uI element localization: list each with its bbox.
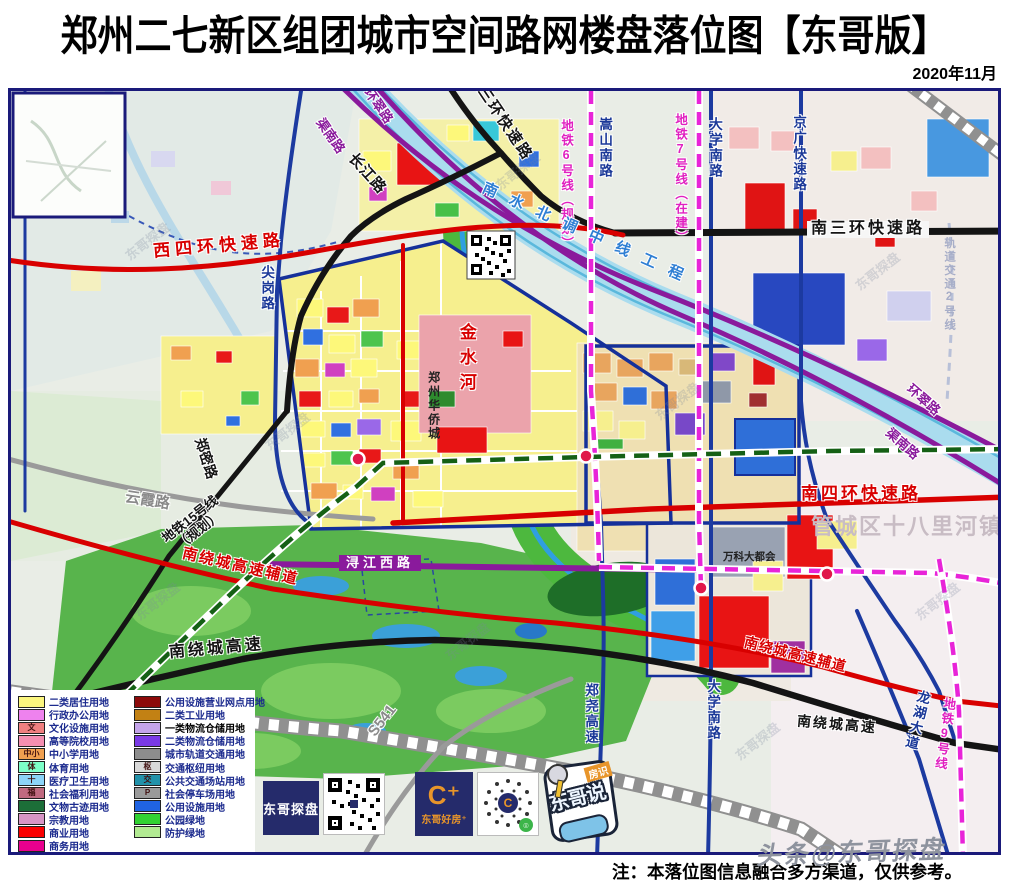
- legend-item: 二类工业用地: [134, 708, 254, 721]
- legend-swatch: 交: [134, 774, 161, 786]
- legend-swatch: [134, 735, 161, 747]
- legend-swatch: [134, 696, 161, 708]
- legend-item: 一类物流仓储用地: [134, 721, 254, 734]
- legend-item: 行政办公用地: [18, 708, 134, 721]
- legend-item: 二类居住用地: [18, 695, 134, 708]
- legend-swatch: [134, 826, 161, 838]
- legend-item: 中小中小学用地: [18, 747, 134, 760]
- legend-item: 枢交通枢纽用地: [134, 760, 254, 773]
- legend: 二类居住用地 行政办公用地 文文化设施用地 高等院校用地 中小中小学用地 体体育…: [11, 690, 255, 852]
- svg-text:⌾: ⌾: [523, 821, 529, 831]
- haofang-logo: C⁺ 东哥好房⁺: [415, 772, 473, 836]
- legend-swatch: 十: [18, 774, 45, 786]
- legend-swatch: [134, 748, 161, 760]
- legend-swatch: 福: [18, 787, 45, 799]
- legend-item: 商务用地: [18, 839, 134, 852]
- legend-item: 文物古迹用地: [18, 800, 134, 813]
- svg-text:C: C: [504, 796, 513, 810]
- legend-item: 高等院校用地: [18, 734, 134, 747]
- legend-swatch: [134, 709, 161, 721]
- legend-item: 城市轨道交通用地: [134, 747, 254, 760]
- legend-column-right: 公用设施营业网点用地 二类工业用地 一类物流仓储用地 二类物流仓储用地 城市轨道…: [134, 695, 254, 852]
- planning-map: 西四环快速路 南三环快速路 西三环快速路 长江路 环翠路 渠南路 地铁6号线（规…: [8, 88, 1001, 855]
- page: 郑州二七新区组团城市空间路网楼盘落位图【东哥版】 2020年11月: [0, 0, 1009, 893]
- legend-item: 防护绿地: [134, 826, 254, 839]
- legend-swatch: [18, 826, 45, 838]
- page-title: 郑州二七新区组团城市空间路网楼盘落位图【东哥版】: [0, 2, 1009, 62]
- legend-swatch: [18, 800, 45, 812]
- legend-swatch: [134, 813, 161, 825]
- legend-swatch: 文: [18, 722, 45, 734]
- legend-item: 交公共交通场站用地: [134, 774, 254, 787]
- tanpan-qr-code: [323, 773, 385, 835]
- legend-swatch: [18, 696, 45, 708]
- legend-column-left: 二类居住用地 行政办公用地 文文化设施用地 高等院校用地 中小中小学用地 体体育…: [18, 695, 134, 852]
- inset-map: [13, 93, 125, 217]
- legend-item: 福社会福利用地: [18, 787, 134, 800]
- legend-item: 商业用地: [18, 826, 134, 839]
- legend-swatch: [18, 813, 45, 825]
- legend-item: 宗教用地: [18, 813, 134, 826]
- legend-item: 公园绿地: [134, 813, 254, 826]
- map-qr-code: [467, 231, 515, 279]
- legend-swatch: [134, 800, 161, 812]
- legend-item: 公用设施营业网点用地: [134, 695, 254, 708]
- legend-swatch: 中小: [18, 748, 45, 760]
- legend-item: 二类物流仓储用地: [134, 734, 254, 747]
- legend-swatch: [18, 840, 45, 852]
- legend-swatch: 枢: [134, 761, 161, 773]
- legend-swatch: 体: [18, 761, 45, 773]
- dongge-shuo-badge: 房识 东哥说: [538, 754, 625, 848]
- haofang-qr-code: C ⌾: [477, 772, 539, 836]
- haofang-c-icon: C⁺: [428, 782, 461, 808]
- legend-item: 文文化设施用地: [18, 721, 134, 734]
- legend-item: P社会停车场用地: [134, 787, 254, 800]
- legend-swatch: [134, 722, 161, 734]
- toutiao-watermark: 头条@东哥探盘: [755, 830, 950, 873]
- tanpan-logo: 东哥探盘: [263, 781, 319, 835]
- legend-item: 体体育用地: [18, 760, 134, 773]
- legend-item: 公用设施用地: [134, 800, 254, 813]
- legend-swatch: P: [134, 787, 161, 799]
- legend-swatch: [18, 735, 45, 747]
- map-date: 2020年11月: [912, 60, 997, 84]
- legend-swatch: [18, 709, 45, 721]
- legend-item: 十医疗卫生用地: [18, 774, 134, 787]
